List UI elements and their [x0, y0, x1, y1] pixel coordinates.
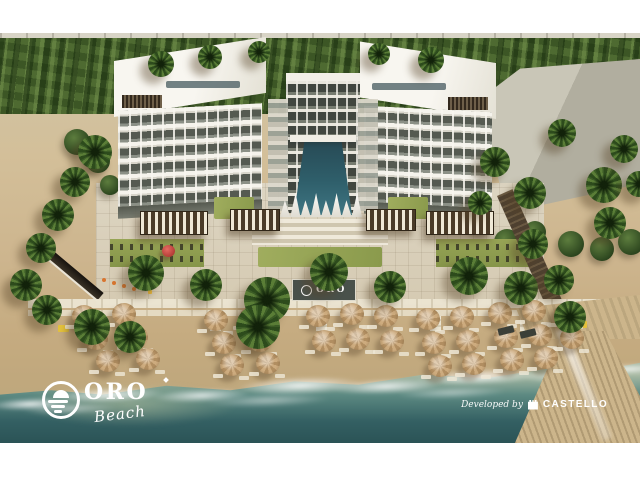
palm-tree	[60, 167, 90, 197]
roof-skylight	[372, 83, 446, 90]
beach-umbrella	[456, 330, 480, 352]
palm-tree	[468, 191, 492, 215]
palm-tree	[114, 321, 146, 353]
beach-umbrella	[500, 349, 524, 371]
palm-tree	[310, 253, 348, 291]
oro-beach-logo: ORO Beach	[40, 377, 190, 435]
courtyard-wall-right	[358, 99, 378, 211]
beach-umbrella	[462, 353, 486, 375]
beach-umbrella	[488, 302, 512, 324]
sun-glyph	[53, 390, 69, 398]
beach-umbrella	[416, 308, 440, 330]
buoy	[112, 281, 116, 285]
wave-glyph	[54, 410, 62, 413]
palm-tree	[368, 43, 390, 65]
palm-tree	[504, 271, 538, 305]
oro-sun-icon	[42, 381, 80, 419]
palm-tree	[26, 233, 56, 263]
courtyard-bridge	[290, 135, 356, 142]
beach-umbrella	[212, 332, 236, 354]
buoy	[122, 284, 126, 288]
resort-rendering: ORO	[0, 33, 640, 443]
castello-castle-icon	[528, 400, 538, 410]
roof-skylight	[166, 81, 240, 88]
shrub	[558, 231, 584, 257]
beach-umbrella	[374, 305, 398, 327]
palm-tree	[480, 147, 510, 177]
beach-umbrella	[256, 352, 280, 374]
palm-tree	[626, 171, 640, 197]
palm-tree	[374, 271, 406, 303]
palm-tree	[10, 269, 42, 301]
beach-umbrella	[422, 332, 446, 354]
pergola	[426, 211, 494, 235]
palm-tree	[554, 301, 586, 333]
red-kids-umbrella	[162, 245, 175, 257]
palm-tree	[610, 135, 638, 163]
palm-tree	[586, 167, 622, 203]
rooftop-pergola	[122, 95, 162, 108]
palm-tree	[450, 257, 488, 295]
palm-tree	[418, 47, 444, 73]
palm-tree	[236, 305, 280, 349]
beach-umbrella	[312, 330, 336, 352]
beach-umbrella	[428, 355, 452, 377]
logo-wordmark: ORO	[84, 379, 148, 405]
beach-umbrella	[220, 354, 244, 376]
beach-umbrella	[340, 303, 364, 325]
developer-credit: Developed by CASTELLO	[461, 399, 608, 410]
beach-umbrella	[306, 305, 330, 327]
palm-tree	[248, 41, 270, 63]
beach-umbrella	[346, 328, 370, 350]
wave-glyph	[51, 405, 65, 408]
beach-umbrella	[380, 330, 404, 352]
beach-umbrella	[204, 309, 228, 331]
palm-tree	[42, 199, 74, 231]
beach-umbrella	[136, 348, 160, 370]
logo-script: Beach	[93, 402, 147, 426]
palm-tree	[518, 229, 548, 259]
palm-tree	[548, 119, 576, 147]
palm-tree	[78, 135, 112, 169]
palm-tree	[514, 177, 546, 209]
palm-tree	[594, 207, 626, 239]
palm-tree	[32, 295, 62, 325]
sparkle-glyph	[163, 377, 169, 383]
palm-tree	[128, 255, 164, 291]
poster-canvas: ORO	[0, 0, 640, 480]
buoy	[102, 278, 106, 282]
rooftop-pergola	[448, 97, 488, 110]
pergola	[230, 209, 280, 231]
palm-tree	[148, 51, 174, 77]
palm-tree	[190, 269, 222, 301]
left-residence-wing	[114, 61, 266, 217]
shrub	[590, 237, 614, 261]
beach-umbrella	[534, 347, 558, 369]
pergola	[366, 209, 416, 231]
left-wing-facade	[118, 103, 262, 207]
oro-sun-icon	[301, 285, 312, 296]
palm-tree	[74, 309, 110, 345]
developer-name: CASTELLO	[543, 399, 608, 410]
beach-umbrella	[96, 350, 120, 372]
palm-tree	[198, 45, 222, 69]
developer-prefix: Developed by	[461, 400, 523, 410]
wave-glyph	[48, 400, 68, 403]
palm-tree	[544, 265, 574, 295]
courtyard-wall-left	[268, 99, 288, 211]
pergola	[140, 211, 208, 235]
beach-umbrella	[450, 306, 474, 328]
